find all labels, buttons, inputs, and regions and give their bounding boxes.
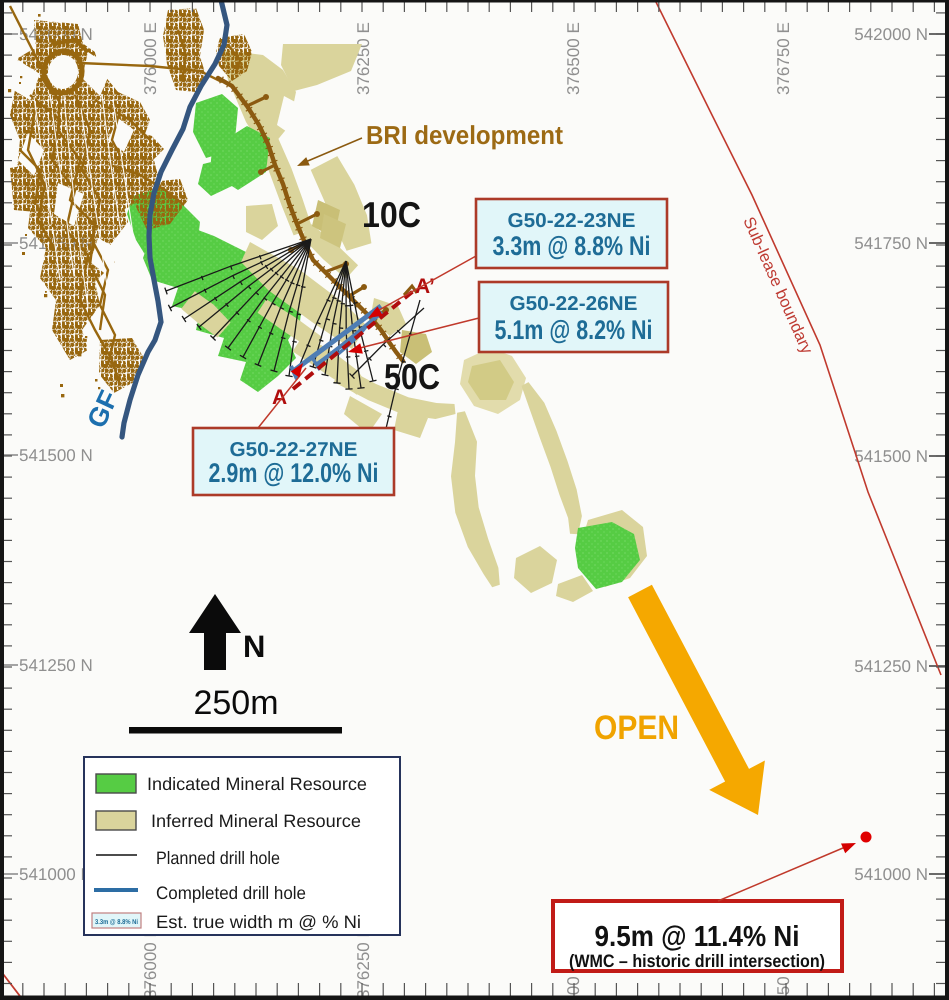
svg-text:3.3m @ 8.8% Ni: 3.3m @ 8.8% Ni xyxy=(493,231,651,261)
svg-text:(WMC – historic drill intersec: (WMC – historic drill intersection) xyxy=(569,951,825,971)
svg-text:A: A xyxy=(272,386,287,409)
svg-text:541250 N: 541250 N xyxy=(854,657,928,676)
svg-text:541500 N: 541500 N xyxy=(19,446,93,465)
svg-text:BRI development: BRI development xyxy=(366,120,563,150)
svg-text:541000 N: 541000 N xyxy=(854,865,928,884)
svg-text:541000 N: 541000 N xyxy=(19,865,93,884)
svg-text:Indicated Mineral Resource: Indicated Mineral Resource xyxy=(147,774,367,794)
svg-text:2.9m @ 12.0% Ni: 2.9m @ 12.0% Ni xyxy=(209,458,379,488)
svg-text:3.3m @ 8.8% Ni: 3.3m @ 8.8% Ni xyxy=(95,918,138,926)
svg-text:OPEN: OPEN xyxy=(594,709,679,747)
svg-text:250m: 250m xyxy=(193,684,278,722)
svg-text:N: N xyxy=(243,629,265,664)
svg-text:10C: 10C xyxy=(362,194,421,235)
svg-text:541500 N: 541500 N xyxy=(854,447,928,466)
svg-text:G50-22-26NE: G50-22-26NE xyxy=(510,293,638,315)
svg-text:376250 E: 376250 E xyxy=(354,926,373,999)
svg-text:541250 N: 541250 N xyxy=(19,656,93,675)
svg-text:376250 E: 376250 E xyxy=(354,22,373,95)
svg-text:Completed drill hole: Completed drill hole xyxy=(156,883,306,903)
svg-text:Inferred Mineral Resource: Inferred Mineral Resource xyxy=(151,811,361,831)
svg-text:9.5m @ 11.4% Ni: 9.5m @ 11.4% Ni xyxy=(595,921,800,953)
svg-text:376000 E: 376000 E xyxy=(141,22,160,95)
svg-text:5.1m @ 8.2% Ni: 5.1m @ 8.2% Ni xyxy=(495,315,653,345)
svg-text:542000 N: 542000 N xyxy=(854,25,928,44)
svg-text:541750 N: 541750 N xyxy=(854,234,928,253)
svg-text:Planned drill hole: Planned drill hole xyxy=(156,848,280,868)
svg-text:G50-22-23NE: G50-22-23NE xyxy=(508,210,636,232)
svg-text:376500 E: 376500 E xyxy=(564,22,583,95)
svg-text:A’: A’ xyxy=(415,275,435,298)
svg-text:50C: 50C xyxy=(384,356,440,397)
svg-text:Est. true width m @ % Ni: Est. true width m @ % Ni xyxy=(156,912,361,932)
svg-text:376750 E: 376750 E xyxy=(774,22,793,95)
